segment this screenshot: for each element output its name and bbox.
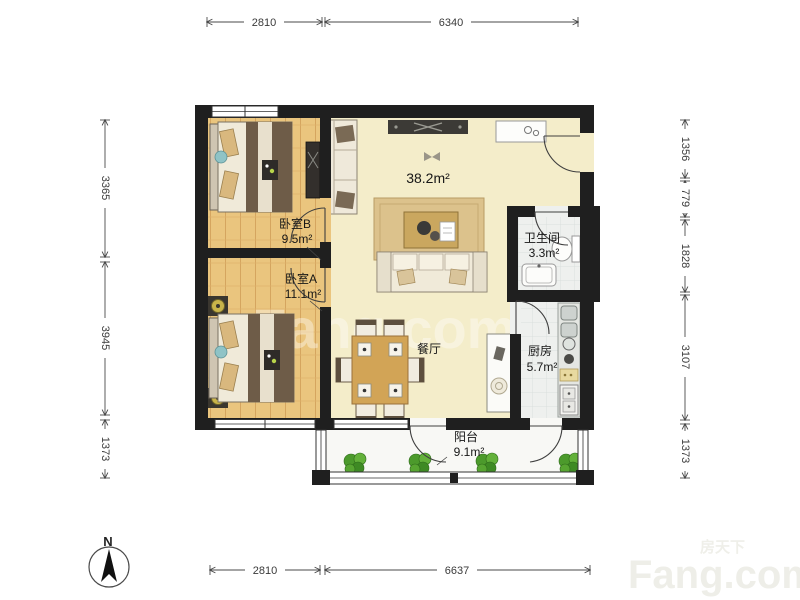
wall-kitchen-left [510,334,521,418]
wall-right-mid [580,172,594,206]
dim-right-3: 1828 [679,244,691,268]
bedroom-b-area: 9.5m² [282,232,313,246]
entry-floor [580,133,594,172]
bedroom-b-label: 卧室B [279,216,311,231]
plant-icon [409,453,431,474]
floor-plan-image: Fang.com [0,0,800,600]
tray-dot [270,169,274,173]
bed-tray-icon [262,160,278,180]
board-dot [570,374,573,377]
plate-dot [394,348,398,352]
watermark-brand: Fang.com [628,553,800,597]
chair-back [356,320,376,325]
sofa-pillow [335,191,355,209]
chair-back [384,320,404,325]
balcony-post [312,470,330,485]
pot-icon [563,338,575,350]
table-decor [430,231,440,241]
dim-right-4: 3107 [679,345,691,369]
dim-left-2: 3945 [99,326,111,350]
cabinet-icon [487,334,512,412]
toilet-tank [572,236,580,262]
cabinet-knob [568,392,571,395]
faucet-dot [537,264,540,267]
plant-icon [344,453,366,474]
bathroom-area: 3.3m² [529,246,560,260]
table-paper [440,222,455,241]
dim-bottom-2: 6637 [445,565,469,577]
bed-tray-icon [264,350,280,370]
north-arrow: N [89,534,129,587]
sofa-armrest [377,252,391,292]
plate-dot [363,389,367,393]
bedroom-a-area: 11.1m² [285,287,321,301]
balcony-post [576,470,594,485]
living-room-area: 38.2m² [406,170,450,186]
chair-back [419,358,424,382]
wall-between-bedrooms [208,248,320,258]
wall-bathroom-right [580,206,600,302]
kitchen-sink-icon [561,306,577,320]
balcony-door-gap [410,418,446,430]
floor-plan-canvas: Fang.com [0,0,800,600]
board-dot [564,374,567,377]
brand-watermark: 房天下 Fang.com [628,538,800,597]
kitchen-fixtures [558,303,580,417]
dining-label: 餐厅 [417,341,441,356]
wall-bathroom-kitchen [507,290,597,302]
tray-dot [267,354,270,357]
balcony-area: 9.1m² [454,445,485,459]
lamp-dot [216,304,220,308]
dim-top-1: 2810 [252,17,276,29]
dim-right-2: 779 [679,189,691,207]
sofa-cushion [445,254,469,270]
bed-cushion-icon [215,151,227,163]
cabinet-medallion [491,378,507,394]
balcony-kitchen-door-gap [530,418,562,430]
kitchen-area: 5.7m² [527,360,558,374]
dim-bottom-1: 2810 [253,565,277,577]
wall-kitchen-right [580,302,594,430]
sofa-cushion [419,254,443,270]
stove-burner-icon [564,354,574,364]
cutting-board-icon [560,369,578,381]
sofa-cushion [393,254,417,270]
balcony-post-mid [450,473,458,483]
bed-headboard-icon [209,318,218,398]
sofa-pillow [449,269,467,285]
plate-dot [394,389,398,393]
dim-left-1: 3365 [99,176,111,200]
dim-top-2: 6340 [439,17,463,29]
wall-left [195,105,208,430]
kitchen-sink-icon [561,323,577,337]
bathroom-label: 卫生间 [524,231,560,245]
sofa-pillow [397,269,415,286]
tv-dot [458,125,461,128]
tray-dot [272,359,276,363]
sofa-armrest [473,252,487,292]
kitchen-label: 厨房 [528,343,552,358]
wardrobe-icon [306,142,320,198]
dim-left-3: 1373 [99,437,111,461]
sofa-pillow [335,125,355,143]
dim-right-5: 1373 [679,439,691,463]
cabinet-knob [568,405,571,408]
tv-dot [394,125,397,128]
dim-right-1: 1356 [679,137,691,161]
wall-living-bathroom [507,206,518,302]
plate-dot [363,348,367,352]
wall-right-top [580,105,594,133]
tray-dot [265,164,268,167]
bedroom-a-label: 卧室A [285,271,317,286]
balcony-label: 阳台 [454,429,478,444]
bed-cushion-icon [215,346,227,358]
chair-back [336,358,341,382]
table-decor [417,221,431,235]
